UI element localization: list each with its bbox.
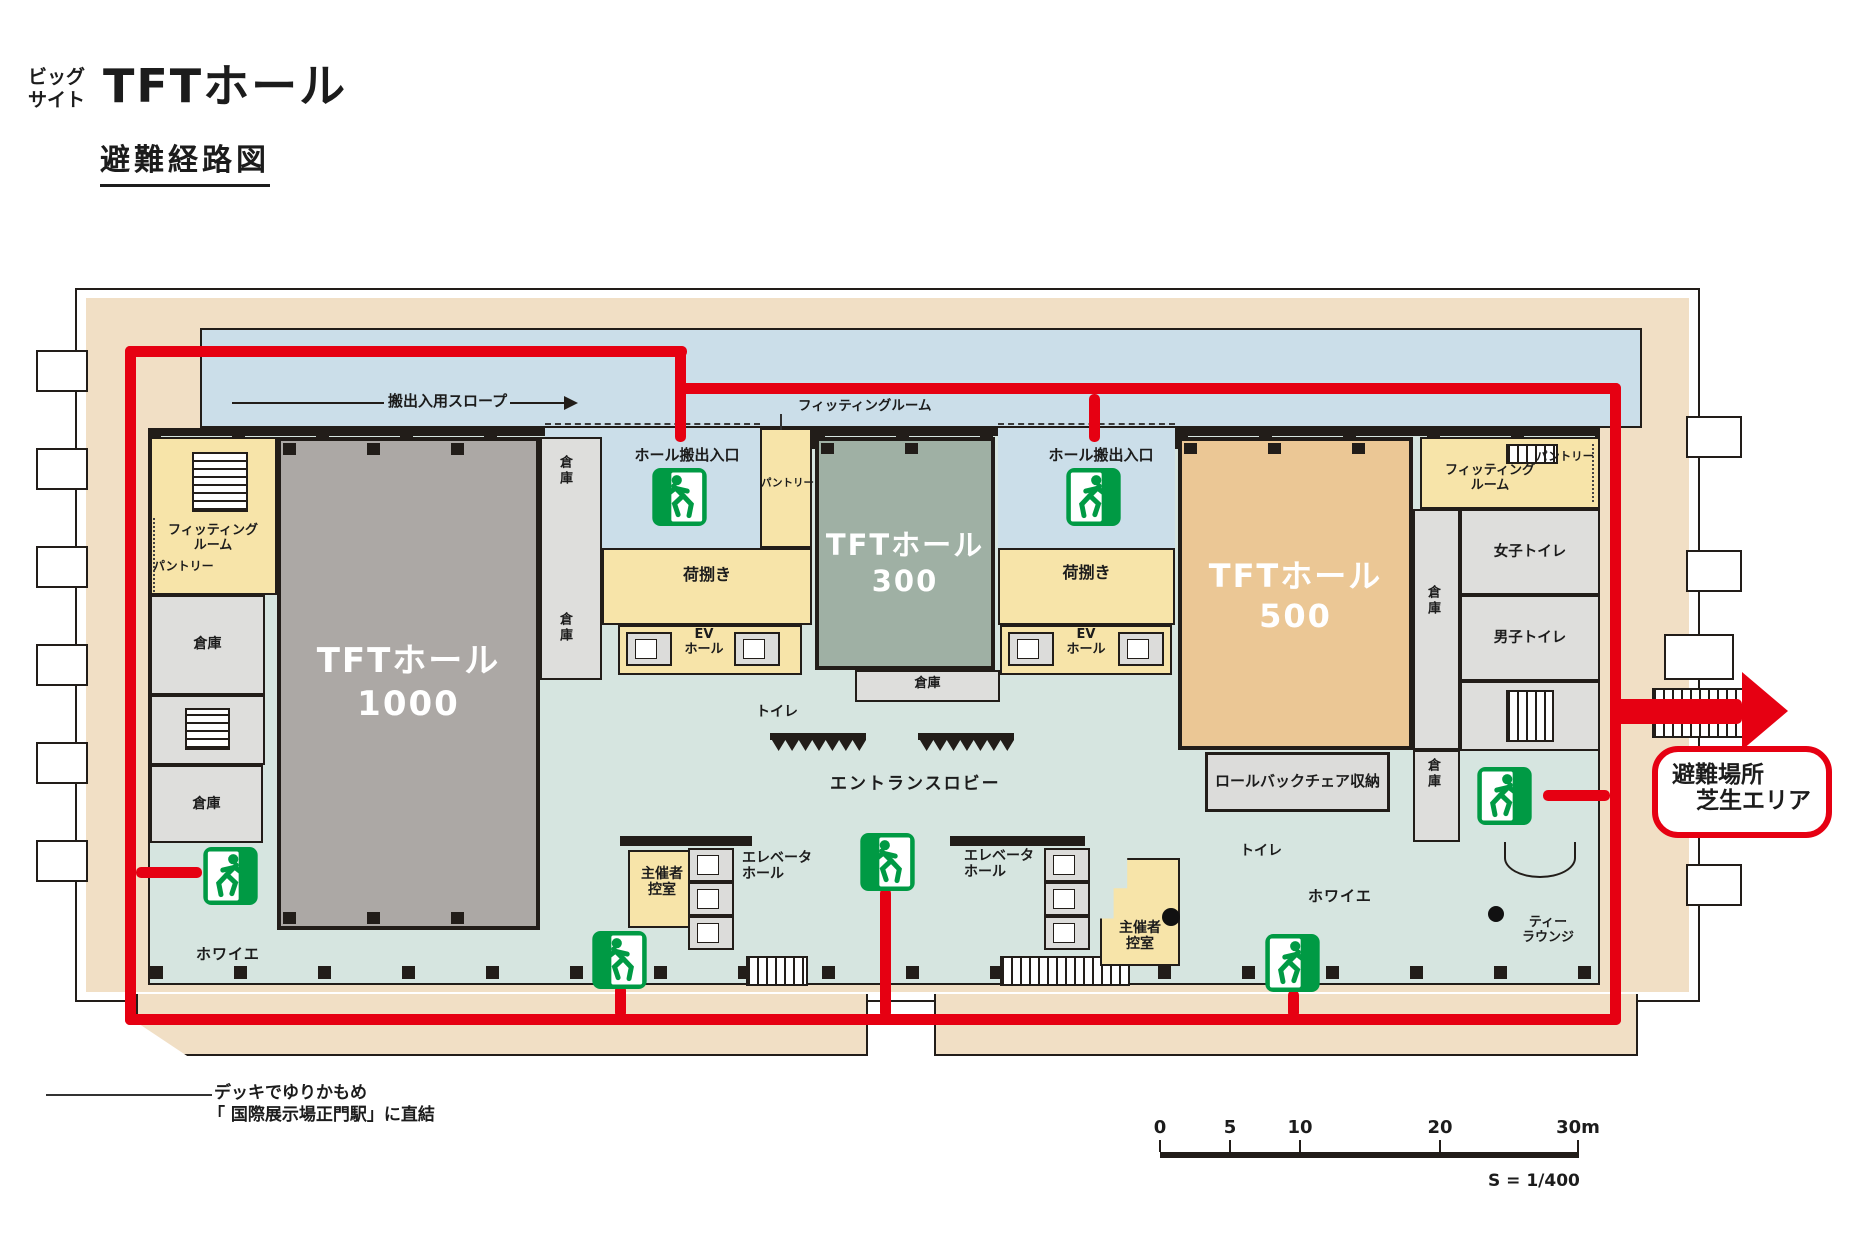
scale-tick-20: 20 [1427, 1118, 1452, 1139]
emergency-exit-icon [1066, 468, 1121, 526]
deck-note-line1: デッキでゆりかもめ [214, 1084, 367, 1104]
scale-tick-30m: 30m [1556, 1118, 1600, 1139]
hall-500-columns [1184, 443, 1407, 454]
loading-dock-icon [36, 350, 88, 392]
hall-exit-label-a: ホール搬出入口 [634, 447, 739, 464]
pantry-dotted-divider [153, 518, 155, 592]
hall-300-number: 300 [815, 563, 995, 599]
foyer-wall-columns [150, 966, 1598, 979]
tea-lounge-label: ティー ラウンジ [1516, 916, 1580, 946]
elevator-cell-icon [1044, 916, 1090, 950]
organizer-room-a-label: 主催者 控室 [628, 866, 696, 898]
toilet-label-b: トイレ [1240, 843, 1282, 859]
scale-tickmark [1159, 1140, 1161, 1152]
storage-label: 倉庫 [556, 612, 571, 644]
cargo-area-a [602, 548, 812, 625]
column-dot-icon [1488, 906, 1504, 922]
stairs-icon [746, 956, 808, 986]
foyer-label-right: ホワイエ [1308, 888, 1372, 905]
elevator-cell-icon [626, 632, 672, 666]
foyer-label-left: ホワイエ [196, 946, 260, 963]
ev-hall-a-label: EV ホール [676, 628, 732, 658]
elevator-wall [950, 836, 1085, 846]
storage-label: 倉庫 [150, 636, 265, 652]
route-bottom-horizontal [125, 1014, 1621, 1025]
emergency-exit-icon [652, 468, 707, 526]
emergency-exit-icon [592, 931, 647, 989]
bottom-band-left [136, 994, 868, 1056]
route-stub-exit3 [136, 867, 202, 878]
storage-label: 倉庫 [855, 677, 1000, 692]
route-top-horizontal-2 [675, 383, 1621, 394]
site-name-line1: ビッグ [28, 66, 85, 89]
deck-note-line2: 「 国際展示場正門駅」に直結 [208, 1106, 435, 1126]
loading-dock-icon [36, 742, 88, 784]
slope-leader-left [232, 402, 384, 404]
elevator-line1: エレベータ [964, 848, 1034, 864]
hall-300-columns [821, 443, 989, 454]
tea-line1: ティー [1516, 916, 1580, 931]
storage-label: 倉庫 [1424, 585, 1439, 617]
elevator-line2: ホール [964, 864, 1034, 880]
fitting-line2: ルーム [152, 539, 274, 554]
ev-line1: EV [1056, 628, 1116, 643]
scale-tick-0: 0 [1154, 1118, 1167, 1139]
site-boundary-dash [545, 423, 760, 425]
fitting-room-mid-label: フィッティングルーム [798, 399, 932, 415]
stairs-icon [1506, 690, 1554, 742]
womens-toilet-label: 女子トイレ [1460, 544, 1600, 561]
fitting-line2: ルーム [1430, 479, 1550, 494]
toilet-label-a: トイレ [756, 704, 798, 720]
loading-dock-icon [1686, 416, 1742, 458]
elevator-cell-icon [688, 848, 734, 882]
fitting-room-left-label: フィッティング ルーム [152, 524, 274, 554]
pantry-label-mid: パントリー [761, 477, 811, 489]
storage-strip-right-1 [1413, 509, 1460, 750]
site-name-line2: サイト [28, 89, 85, 112]
page-title: TFTホール [103, 60, 347, 113]
hall-1000-columns [283, 912, 534, 924]
hall-1000-name: TFTホール [277, 640, 540, 683]
organizer-line1: 主催者 [628, 866, 696, 882]
loading-dock-icon [36, 546, 88, 588]
scale-ratio: S = 1/400 [1488, 1172, 1580, 1192]
elevator-line2: ホール [742, 866, 812, 882]
ev-line2: ホール [1056, 643, 1116, 658]
route-top-horizontal-1 [125, 346, 687, 357]
scale-tickmark [1439, 1140, 1441, 1152]
hall-1000-columns [283, 443, 534, 455]
elevator-cell-icon [688, 916, 734, 950]
tea-line2: ラウンジ [1516, 931, 1580, 946]
slope-label: 搬出入用スロープ [388, 393, 507, 410]
emergency-exit-icon [203, 847, 258, 905]
elevator-wall [620, 836, 752, 846]
stairs-icon [192, 452, 248, 512]
loading-dock-icon [1686, 550, 1742, 592]
elevator-cell-icon [1008, 632, 1054, 666]
fitting-room-right-label: フィッティング ルーム [1430, 464, 1550, 494]
top-wall [812, 428, 998, 436]
hall-500-name: TFTホール [1178, 556, 1413, 596]
hall-500-label: TFTホール 500 [1178, 556, 1413, 636]
deck-note-leader [46, 1094, 212, 1096]
site-name-small: ビッグ サイト [28, 66, 85, 112]
scale-tickmark [1299, 1140, 1301, 1152]
hall-300-label: TFTホール 300 [815, 527, 995, 600]
elevator-hall-b-label: エレベータ ホール [964, 848, 1034, 880]
route-junction-vertical [675, 346, 686, 442]
hall-1000-number: 1000 [277, 683, 540, 726]
scale-tickmark [1577, 1140, 1579, 1152]
top-wall [148, 428, 545, 436]
bottom-band-right [934, 994, 1638, 1056]
emergency-exit-icon [1477, 767, 1532, 825]
pantry-dotted-divider [1592, 444, 1594, 502]
emergency-exit-icon [1265, 934, 1320, 992]
entrance-canopy-icon [770, 733, 866, 751]
cargo-label-a: 荷捌き [602, 566, 812, 584]
loading-dock-icon [36, 840, 88, 882]
loading-dock-icon [36, 644, 88, 686]
storage-label: 倉庫 [556, 455, 571, 487]
exterior-stair-structure [1664, 634, 1734, 680]
elevator-cell-icon [1044, 848, 1090, 882]
pantry-right-label: パントリー [1536, 450, 1594, 463]
evacuation-arrow-shaft [1610, 699, 1742, 724]
hall-1000-label: TFTホール 1000 [277, 640, 540, 725]
evacuation-arrow-head-icon [1742, 672, 1788, 750]
map-subtitle: 避難経路図 [100, 144, 270, 187]
storage-label: 倉庫 [150, 796, 263, 812]
fitting-line1: フィッティング [1430, 464, 1550, 479]
entrance-lobby-label: エントランスロビー [830, 775, 990, 795]
ev-hall-b-label: EV ホール [1056, 628, 1116, 658]
cargo-label-b: 荷捌き [998, 564, 1175, 582]
ev-line2: ホール [676, 643, 732, 658]
route-stub-exit5 [880, 888, 891, 1018]
elevator-cell-icon [1118, 632, 1164, 666]
route-stub-exit7 [1543, 790, 1610, 801]
loading-dock-icon [1686, 864, 1742, 906]
emergency-exit-icon [860, 833, 915, 891]
storage-label: 倉庫 [1424, 758, 1439, 790]
evacuation-site-box: 避難場所 芝生エリア [1652, 746, 1832, 838]
organizer-line2: 控室 [1102, 936, 1178, 952]
ev-line1: EV [676, 628, 732, 643]
fitting-mid-leader [780, 414, 782, 430]
organizer-line2: 控室 [628, 882, 696, 898]
elevator-hall-a-label: エレベータ ホール [742, 850, 812, 882]
elevator-line1: エレベータ [742, 850, 812, 866]
evacuation-map-page: ビッグ サイト TFTホール 避難経路図 搬出入用スロープ TFTホール 10 [0, 0, 1870, 1246]
site-boundary-dash [998, 423, 1175, 425]
scale-tickmark [1229, 1140, 1231, 1152]
pantry-left-label: パントリー [153, 560, 214, 574]
top-wall [1175, 428, 1600, 436]
hall-500-number: 500 [1178, 596, 1413, 636]
hall-exit-label-b: ホール搬出入口 [1048, 447, 1153, 464]
elevator-cell-icon [734, 632, 780, 666]
route-stub-exit6 [1288, 990, 1299, 1018]
hall-300-name: TFTホール [815, 527, 995, 563]
rollback-chair-storage-label: ロールバックチェア収納 [1205, 773, 1390, 790]
slope-leader-right [510, 402, 564, 404]
evacuation-site-line1: 避難場所 [1672, 762, 1826, 788]
column-dot-icon [1162, 908, 1180, 926]
route-stub-exit2 [1089, 394, 1100, 442]
evacuation-site-line2: 芝生エリア [1672, 788, 1826, 814]
elevator-cell-icon [1044, 882, 1090, 916]
scale-tick-5: 5 [1224, 1118, 1237, 1139]
route-left-vertical [125, 346, 136, 1025]
loading-dock-icon [36, 448, 88, 490]
elevator-cell-icon [688, 882, 734, 916]
stairs-icon [185, 708, 230, 750]
cargo-area-b [998, 548, 1175, 625]
entrance-canopy-icon [918, 733, 1014, 751]
scale-tick-10: 10 [1287, 1118, 1312, 1139]
fitting-line1: フィッティング [152, 524, 274, 539]
mens-toilet-label: 男子トイレ [1460, 630, 1600, 647]
scale-bar [1160, 1152, 1579, 1158]
slope-arrow-icon [564, 396, 578, 410]
route-stub-exit4 [615, 985, 626, 1018]
